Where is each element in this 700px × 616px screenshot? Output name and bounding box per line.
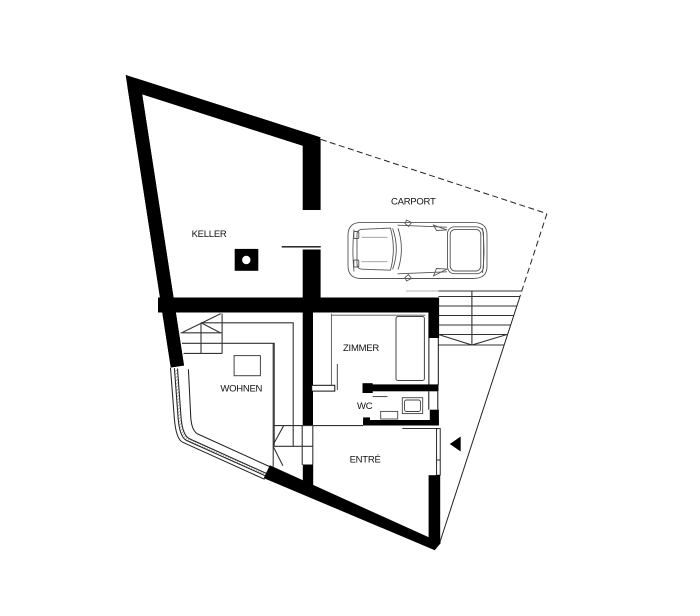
svg-text:CARPORT: CARPORT xyxy=(391,197,436,208)
svg-text:WOHNEN: WOHNEN xyxy=(220,384,262,395)
svg-text:WC: WC xyxy=(357,401,373,412)
svg-text:ENTRÉ: ENTRÉ xyxy=(350,454,381,465)
svg-text:KELLER: KELLER xyxy=(192,229,227,240)
svg-text:ZIMMER: ZIMMER xyxy=(343,343,379,354)
